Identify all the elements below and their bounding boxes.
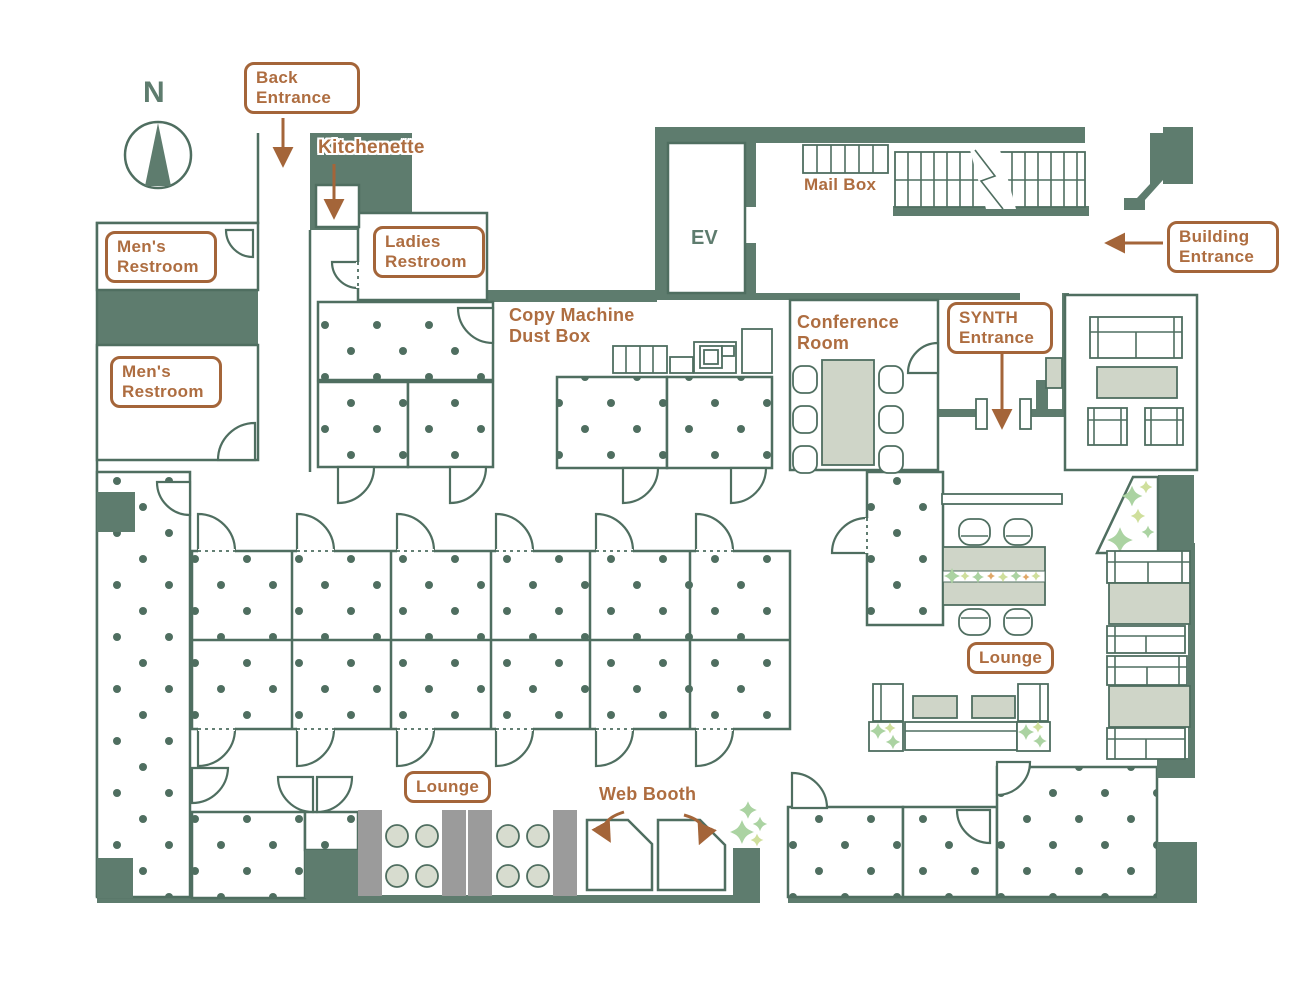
floor-plan: N Back Entrance Kitchenette Men's Restro…: [0, 0, 1303, 992]
planter: [1017, 722, 1050, 751]
bottom-right-lounge: [869, 684, 1050, 751]
bottom-lounge-benches: [358, 810, 577, 896]
lounge-big-table: [942, 494, 1062, 635]
mail-box-unit: [803, 145, 888, 173]
kitchenette-room: [316, 185, 359, 227]
mens-restroom-upper-label: Men's Restroom: [105, 231, 217, 283]
back-entrance-label: Back Entrance: [244, 62, 360, 114]
door-ladies: [332, 262, 358, 288]
web-booth-label: Web Booth: [599, 784, 696, 805]
compass-north-label: N: [143, 76, 165, 110]
elevator-label: EV: [691, 227, 718, 250]
lounge-right-label: Lounge: [967, 642, 1054, 674]
lounge-bottom-label: Lounge: [404, 771, 491, 803]
gate-post: [1020, 399, 1031, 429]
web-booth-arrow-left: [605, 812, 624, 836]
mail-box-label: Mail Box: [804, 175, 876, 195]
plant: [730, 801, 767, 844]
planter: [869, 722, 903, 751]
mens-restroom-lower-label: Men's Restroom: [110, 356, 222, 408]
elevator-room: [668, 143, 745, 293]
synth-entrance-label: SYNTH Entrance: [947, 302, 1053, 354]
gate-post: [976, 399, 987, 429]
door-under-conference: [832, 518, 867, 553]
web-booth-arrow-right: [684, 815, 704, 838]
conference-furniture: [793, 360, 903, 473]
copy-machine-dust-box-label: Copy Machine Dust Box: [509, 305, 669, 346]
floorplan-canvas: [0, 0, 1303, 992]
office-room-grid: [192, 551, 790, 729]
kitchenette-label: Kitchenette: [318, 137, 425, 159]
compass: [125, 122, 191, 188]
counter: [942, 494, 1062, 504]
ladies-restroom-label: Ladies Restroom: [373, 226, 485, 278]
building-entrance-label: Building Entrance: [1167, 221, 1279, 273]
compass-needle: [145, 123, 171, 186]
conference-room-label: Conference Room: [797, 312, 927, 353]
staircase: [895, 150, 1085, 209]
